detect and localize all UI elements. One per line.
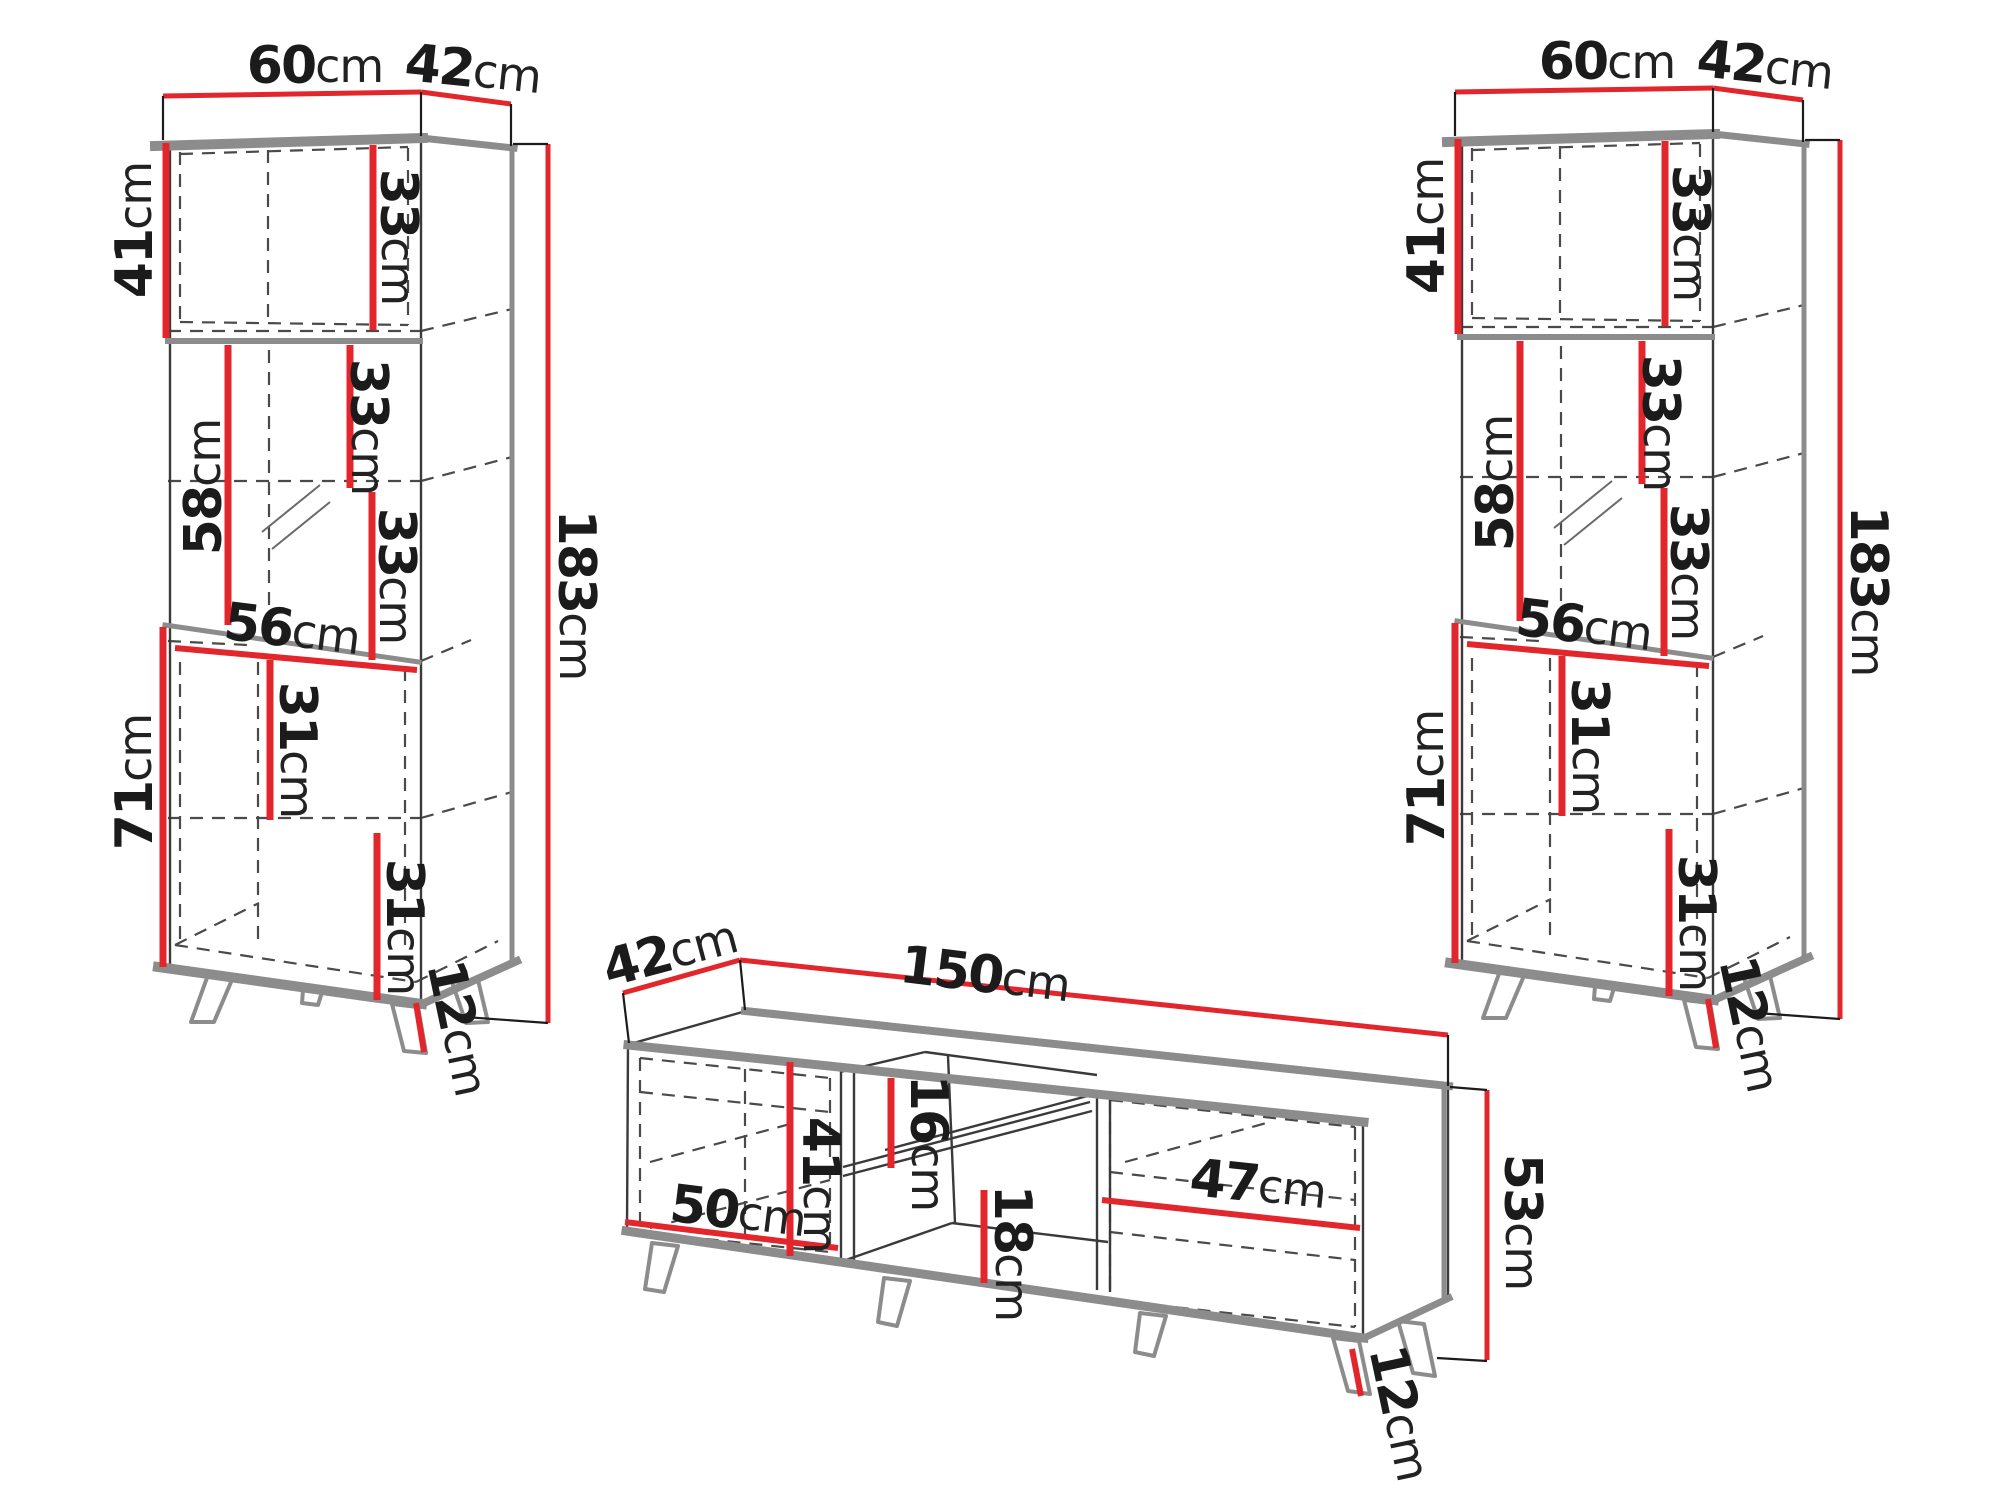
dim-display-upper-spacing-label: 33cm xyxy=(1630,355,1690,491)
dim-width-label: 60cm xyxy=(247,36,383,96)
left-tall-cabinet: 60cm 42cm 41cm 33cm 58cm 33cm 33cm 56cm … xyxy=(105,33,606,1101)
dim-depth-label: 42cm xyxy=(402,33,544,107)
dim-lower-section-height-label: 71cm xyxy=(1397,710,1457,846)
left-cabinet-labels: 60cm 42cm 41cm 33cm 58cm 33cm 33cm 56cm … xyxy=(105,33,606,1101)
dim-lower-upper-spacing-label: 31cm xyxy=(267,682,327,818)
dim-top-shelf-spacing-label: 33cm xyxy=(1660,165,1720,301)
dim-lower-upper-spacing-label: 31cm xyxy=(1559,678,1619,814)
dim-lower-section-height-label: 71cm xyxy=(105,714,165,850)
dim-depth-label: 42cm xyxy=(596,906,743,999)
dim-total-height-label: 183cm xyxy=(546,510,606,681)
dim-height-label: 53cm xyxy=(1492,1154,1552,1290)
right-cabinet-labels: 60cm 42cm 41cm 33cm 58cm 33cm 33cm 56cm … xyxy=(1397,29,1898,1097)
dim-depth-label: 42cm xyxy=(1694,29,1836,103)
dim-total-height-label: 183cm xyxy=(1838,506,1898,677)
dim-top-section-height-label: 41cm xyxy=(1397,158,1457,294)
furniture-dimension-diagram: 60cm 42cm 41cm 33cm 58cm 33cm 33cm 56cm … xyxy=(0,0,2000,1500)
dim-display-door-height-label: 58cm xyxy=(1466,415,1526,551)
tv-stand: 42cm 150cm 50cm 41cm 16cm 18cm 47cm 53cm… xyxy=(596,906,1552,1486)
dim-display-upper-spacing-label: 33cm xyxy=(338,359,398,495)
tv-stand-leg-3 xyxy=(1135,1313,1166,1356)
dim-niche-upper-height-label: 16cm xyxy=(898,1075,958,1211)
dim-width-label: 150cm xyxy=(897,935,1074,1015)
dim-left-section-height-label: 41cm xyxy=(790,1117,850,1253)
dim-display-door-height-label: 58cm xyxy=(174,419,234,555)
dim-display-lower-spacing-label: 33cm xyxy=(366,508,426,644)
tv-stand-leg-2 xyxy=(878,1278,910,1326)
dim-width-label: 60cm xyxy=(1539,32,1675,92)
dim-niche-lower-height-label: 18cm xyxy=(982,1185,1042,1321)
dim-top-section-height-label: 41cm xyxy=(105,162,165,298)
right-tall-cabinet: 60cm 42cm 41cm 33cm 58cm 33cm 33cm 56cm … xyxy=(1397,29,1898,1097)
tv-stand-leg-1 xyxy=(645,1243,678,1292)
diagram-canvas: 60cm 42cm 41cm 33cm 58cm 33cm 33cm 56cm … xyxy=(0,0,2000,1500)
dim-display-lower-spacing-label: 33cm xyxy=(1658,504,1718,640)
dim-top-shelf-spacing-label: 33cm xyxy=(368,169,428,305)
